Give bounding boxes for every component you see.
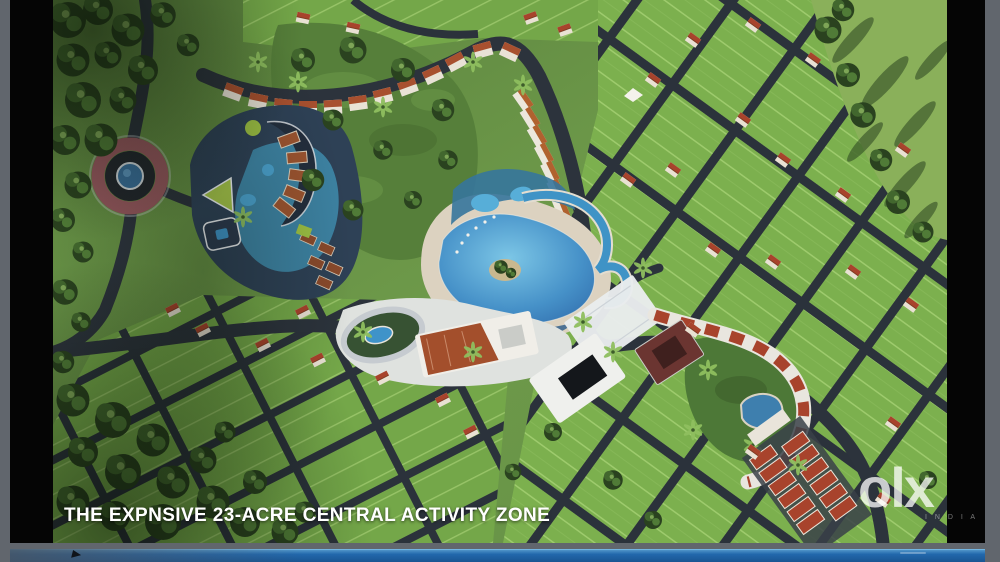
- progress-bar[interactable]: [10, 549, 985, 562]
- progress-bar-buffered: [10, 549, 303, 562]
- letterbox-left: [10, 0, 53, 543]
- media-viewer: THE EXPNSIVE 23-ACRE CENTRAL ACTIVITY ZO…: [0, 0, 1000, 562]
- olx-logo: olx: [858, 460, 933, 516]
- masterplan-render: [53, 0, 947, 543]
- image-caption: THE EXPNSIVE 23-ACRE CENTRAL ACTIVITY ZO…: [64, 505, 550, 527]
- progress-highlight: [900, 552, 926, 554]
- masterplan-photo: [53, 0, 947, 543]
- olx-country-label: I N D I A: [925, 514, 978, 521]
- letterbox-right: [947, 0, 985, 543]
